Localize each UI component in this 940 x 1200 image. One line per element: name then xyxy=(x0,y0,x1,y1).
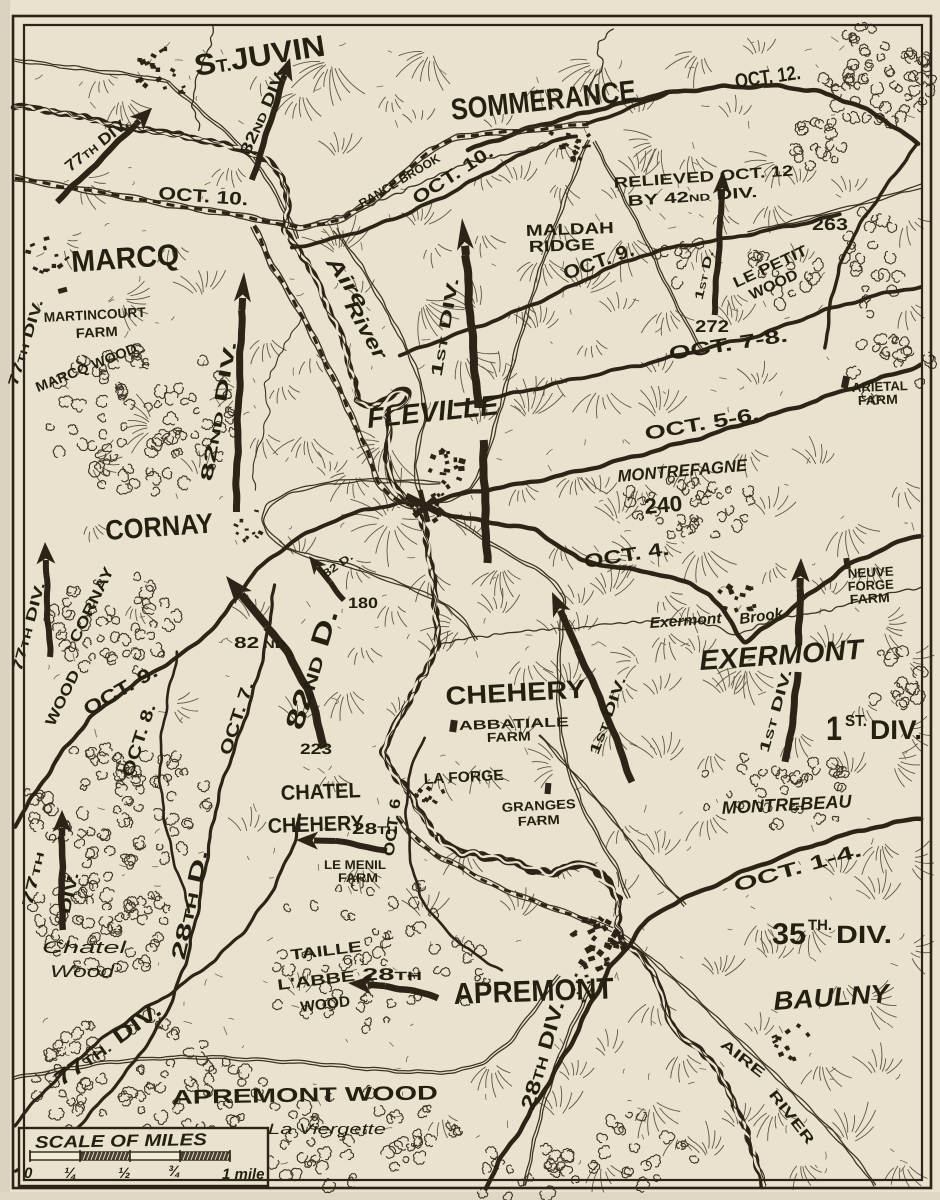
svg-text:FARM: FARM xyxy=(517,812,560,829)
svg-text:240: 240 xyxy=(643,491,683,519)
svg-text:APREMONT: APREMONT xyxy=(453,972,614,1011)
svg-text:DIV.: DIV. xyxy=(870,715,922,745)
svg-text:CHEHERY: CHEHERY xyxy=(267,812,364,838)
svg-text:FARM: FARM xyxy=(338,871,378,885)
svg-text:223: 223 xyxy=(300,741,332,758)
svg-text:LE MENIL: LE MENIL xyxy=(324,858,386,872)
svg-text:35: 35 xyxy=(772,918,806,951)
svg-text:Chatel: Chatel xyxy=(42,938,128,957)
svg-text:1: 1 xyxy=(826,710,842,748)
svg-text:RIDGE: RIDGE xyxy=(529,237,596,256)
svg-text:DIV.: DIV. xyxy=(836,921,892,949)
svg-text:APREMONT WOOD: APREMONT WOOD xyxy=(172,1082,438,1109)
svg-text:SCALE OF MILES: SCALE OF MILES xyxy=(35,1130,208,1152)
svg-text:263: 263 xyxy=(812,215,848,234)
svg-text:CHATEL: CHATEL xyxy=(280,779,361,805)
svg-text:ST.: ST. xyxy=(845,713,867,730)
svg-text:Wood: Wood xyxy=(50,962,115,981)
svg-text:La Viergette: La Viergette xyxy=(268,1121,386,1138)
svg-text:TH.: TH. xyxy=(808,917,832,934)
svg-text:FARM: FARM xyxy=(75,324,118,341)
svg-text:272: 272 xyxy=(695,317,729,336)
svg-text:FARM: FARM xyxy=(849,590,890,607)
svg-text:¾: ¾ xyxy=(168,1163,181,1180)
svg-text:FARM: FARM xyxy=(858,392,898,408)
svg-text:180: 180 xyxy=(348,595,378,612)
svg-text:FARM: FARM xyxy=(487,728,531,745)
